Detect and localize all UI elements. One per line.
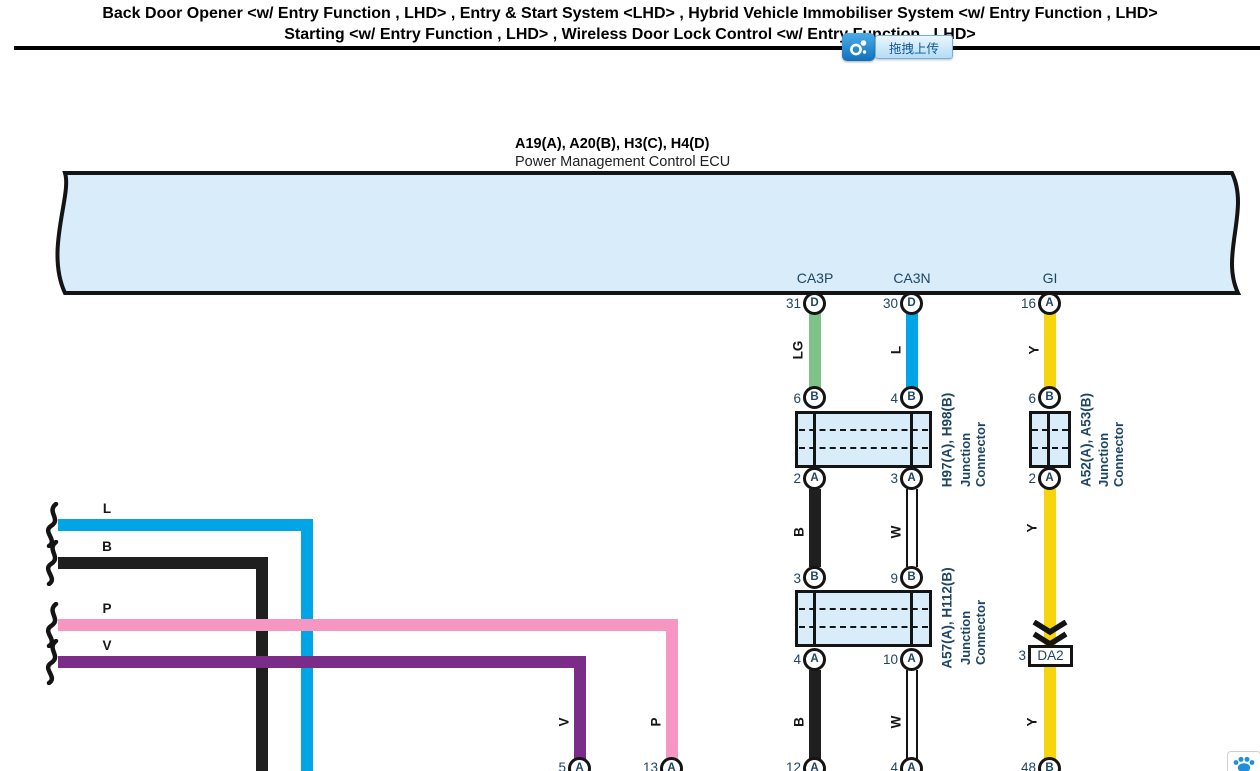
junction-code-label: H97(A), H98(B) xyxy=(940,393,955,488)
pin-number: 30 xyxy=(868,296,898,311)
wire-b-vertical xyxy=(809,489,821,567)
wire-color-label: LG xyxy=(791,341,806,360)
double-chevron-down-icon xyxy=(1031,620,1069,646)
pin-terminal: A xyxy=(1038,467,1061,490)
junction-code-label: A52(A), A53(B) xyxy=(1079,393,1094,487)
pin-number: 4 xyxy=(868,391,898,406)
wire-p-vertical xyxy=(666,619,678,771)
page-title: Back Door Opener <w/ Entry Function , LH… xyxy=(0,3,1260,45)
pin-number: 4 xyxy=(868,760,898,771)
pin-number: 2 xyxy=(771,471,801,486)
pin-terminal: B xyxy=(900,386,923,409)
pin-terminal: B xyxy=(803,386,826,409)
junction-grid-dash xyxy=(1032,447,1068,449)
wire-l-vertical xyxy=(301,519,313,771)
wire-v-horizontal xyxy=(58,656,586,668)
pin-number: 5 xyxy=(536,760,566,771)
pin-number: 3 xyxy=(771,571,801,586)
pin-terminal: B xyxy=(1038,386,1061,409)
page-title-line1: Back Door Opener <w/ Entry Function , LH… xyxy=(0,3,1260,24)
wire-color-label: B xyxy=(102,539,112,554)
pin-number: 9 xyxy=(868,571,898,586)
pin-terminal: A xyxy=(1038,292,1061,315)
junction-grid-line xyxy=(813,411,816,468)
pin-terminal: A xyxy=(803,467,826,490)
wire-color-label: P xyxy=(102,601,111,616)
wire-color-label: V xyxy=(102,638,111,653)
wire-color-label: Y xyxy=(1027,345,1042,354)
pin-number: 12 xyxy=(771,760,801,771)
wire-color-label: W xyxy=(889,526,904,539)
wire-v-vertical xyxy=(574,656,586,771)
paw-icon xyxy=(1232,756,1256,771)
da2-connector: DA2 xyxy=(1028,645,1073,667)
junction-grid-line xyxy=(813,590,816,647)
junction-connector-box xyxy=(1029,411,1071,468)
pin-number: 31 xyxy=(771,296,801,311)
pin-number: 3 xyxy=(868,471,898,486)
pin-number: 10 xyxy=(868,652,898,667)
pin-terminal: A xyxy=(803,757,826,771)
junction-grid-dash xyxy=(1032,429,1068,431)
junction-grid-dash xyxy=(799,626,928,628)
wire-p-horizontal xyxy=(58,619,678,631)
wire-lg-vertical xyxy=(809,313,821,390)
connector-name-ca3p: CA3P xyxy=(797,270,834,286)
junction-name-label: Junction Connector xyxy=(1096,393,1126,487)
pin-terminal: A xyxy=(803,648,826,671)
connector-name-ca3n: CA3N xyxy=(893,270,930,286)
junction-code-label: A57(A), H112(B) xyxy=(940,567,955,668)
wire-w-vertical xyxy=(906,670,918,771)
wire-y-vertical xyxy=(1044,666,1056,771)
upload-button[interactable]: 拖拽上传 xyxy=(875,35,953,59)
wire-l-horizontal xyxy=(58,519,313,531)
pin-terminal: A xyxy=(660,757,683,771)
upload-overlay[interactable]: 拖拽上传 xyxy=(842,33,953,61)
pin-terminal: A xyxy=(900,648,923,671)
wire-b-horizontal xyxy=(58,557,268,569)
wire-color-label: Y xyxy=(1025,523,1040,532)
wiring-diagram-page: Back Door Opener <w/ Entry Function , LH… xyxy=(0,0,1260,771)
pin-number: 16 xyxy=(1006,296,1036,311)
ecu-name-label: Power Management Control ECU xyxy=(515,154,730,170)
wire-color-label: W xyxy=(889,716,904,729)
ecu-codes-label: A19(A), A20(B), H3(C), H4(D) xyxy=(515,136,709,152)
wire-w-vertical xyxy=(906,489,918,567)
wire-color-label: V xyxy=(557,717,572,726)
wire-color-label: Y xyxy=(1025,717,1040,726)
wire-color-label: B xyxy=(792,527,807,537)
pin-number: 6 xyxy=(1006,391,1036,406)
link-nodes-icon[interactable] xyxy=(842,33,875,61)
wire-continuation-squiggle xyxy=(42,639,62,685)
page-title-line2: Starting <w/ Entry Function , LHD> , Wir… xyxy=(0,24,1260,45)
connector-name-gi: GI xyxy=(1043,270,1058,286)
junction-grid-dash xyxy=(799,429,928,431)
pin-terminal: D xyxy=(803,292,826,315)
junction-grid-line xyxy=(910,411,913,468)
wire-continuation-squiggle xyxy=(42,540,62,586)
junction-grid-dash xyxy=(799,447,928,449)
junction-grid-line xyxy=(910,590,913,647)
pin-number: 2 xyxy=(1006,471,1036,486)
junction-name-label: Junction Connector xyxy=(958,393,988,487)
wire-color-label: L xyxy=(889,346,904,354)
pin-terminal: A xyxy=(900,757,923,771)
pin-number: 3 xyxy=(996,648,1026,663)
pin-number: 4 xyxy=(771,652,801,667)
title-divider xyxy=(14,46,1260,50)
pin-terminal: B xyxy=(803,566,826,589)
wire-color-label: B xyxy=(792,717,807,727)
pin-terminal: B xyxy=(900,566,923,589)
ecu-body xyxy=(45,170,1250,296)
pin-terminal: B xyxy=(1038,757,1061,771)
junction-name-label: Junction Connector xyxy=(958,571,988,665)
junction-grid-line xyxy=(1047,411,1050,468)
wire-l-vertical xyxy=(906,313,918,390)
pin-number: 13 xyxy=(628,760,658,771)
pin-terminal: A xyxy=(900,467,923,490)
wire-b-vertical xyxy=(809,670,821,771)
pin-terminal: A xyxy=(568,757,591,771)
junction-grid-dash xyxy=(799,608,928,610)
wire-y-vertical xyxy=(1044,313,1056,390)
pin-number: 48 xyxy=(1006,760,1036,771)
paw-button[interactable] xyxy=(1227,751,1260,771)
pin-terminal: D xyxy=(900,292,923,315)
wire-color-label: P xyxy=(649,717,664,726)
pin-number: 6 xyxy=(771,391,801,406)
wire-color-label: L xyxy=(103,501,111,516)
